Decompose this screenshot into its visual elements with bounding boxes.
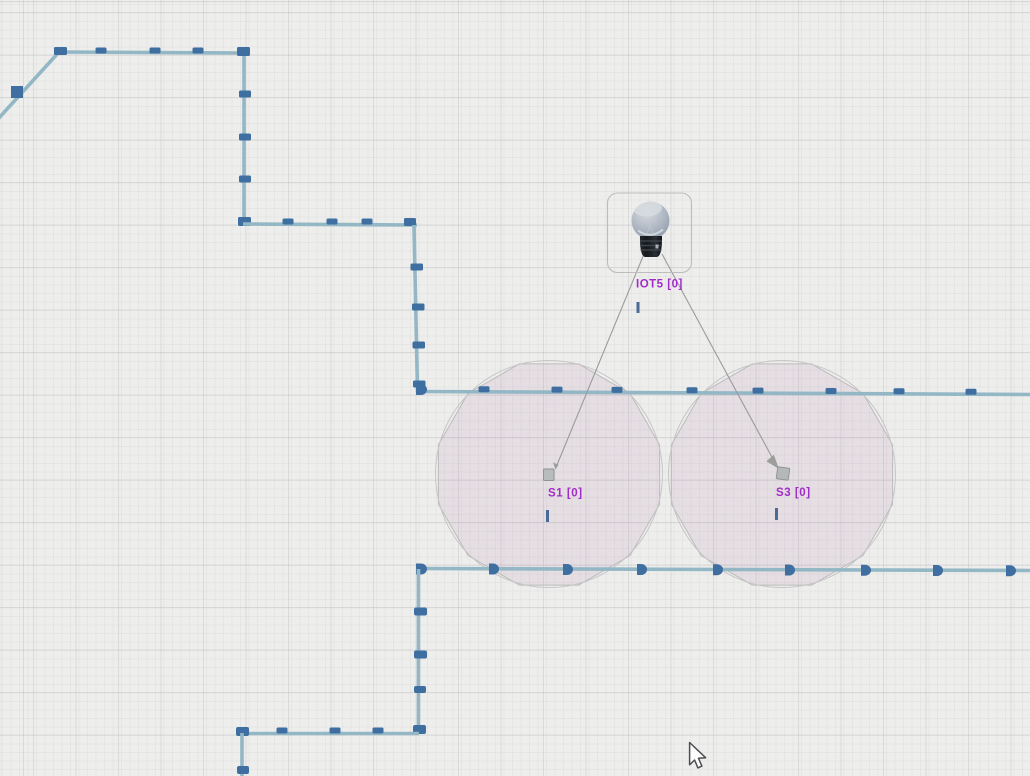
svg-text:S1 [0]: S1 [0] — [548, 488, 583, 500]
svg-text:IOT5 [0]: IOT5 [0] — [636, 279, 683, 291]
svg-text:S3 [0]: S3 [0] — [776, 487, 811, 499]
